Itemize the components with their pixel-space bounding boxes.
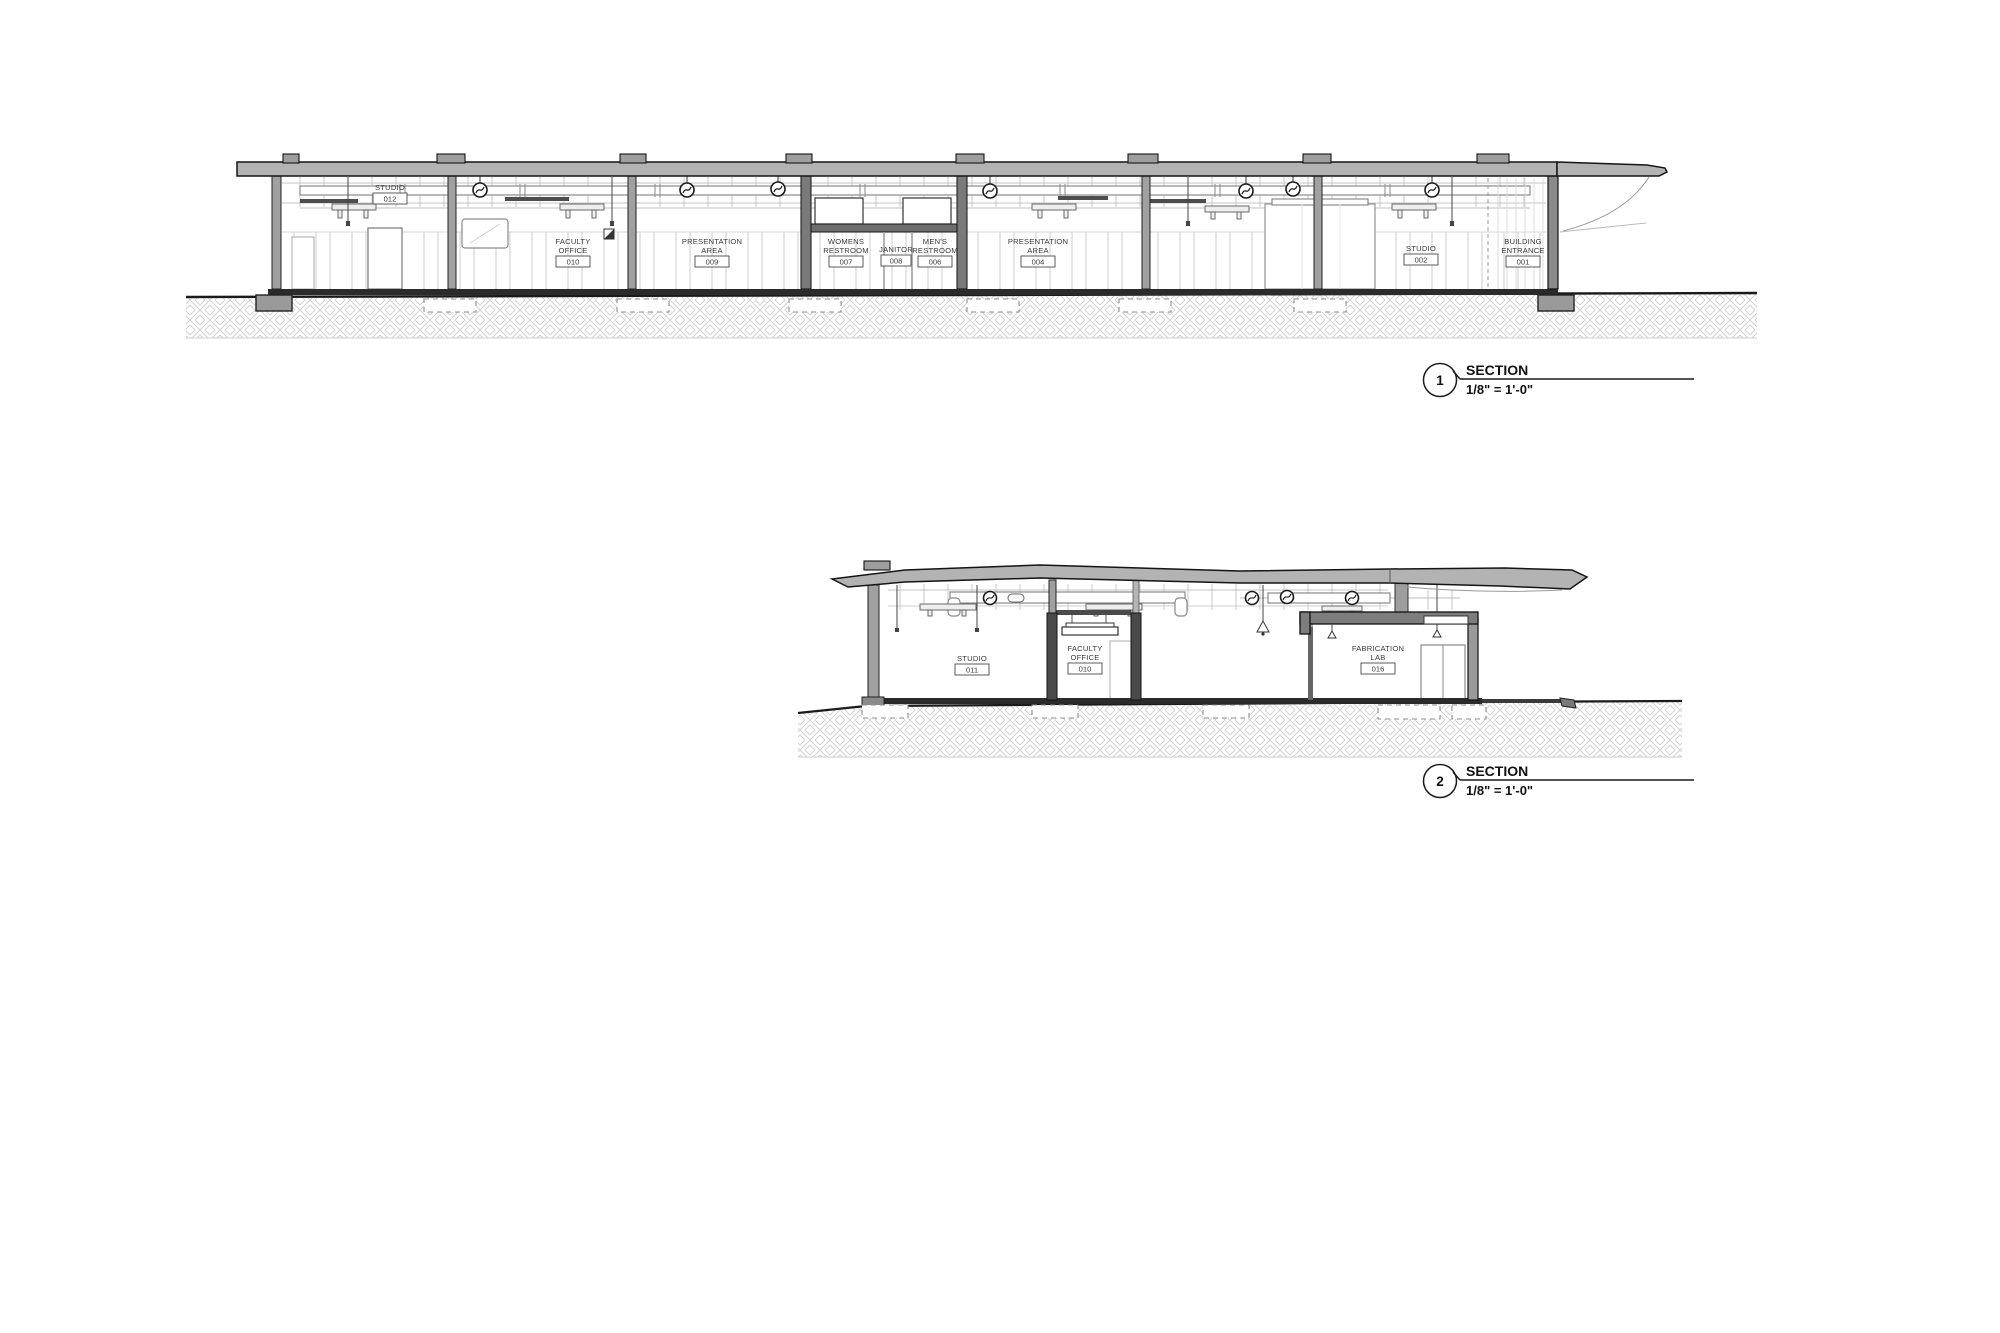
svg-text:RESTROOM: RESTROOM xyxy=(823,246,868,255)
callout-title: SECTION xyxy=(1466,362,1528,378)
callout-scale: 1/8" = 1'-0" xyxy=(1466,382,1533,397)
room-label-studio-012: STUDIO 012 xyxy=(373,183,407,204)
svg-text:STUDIO: STUDIO xyxy=(1406,244,1436,253)
section2-drawing: STUDIO 011 FACULTY OFFICE 010 FABRICATIO… xyxy=(798,561,1694,798)
svg-text:STUDIO: STUDIO xyxy=(375,183,405,192)
section1-drawing: STUDIO 012 FACULTY OFFICE 010 PRESENTATI… xyxy=(186,154,1757,397)
svg-text:FACULTY: FACULTY xyxy=(1067,644,1102,653)
svg-text:004: 004 xyxy=(1032,258,1045,267)
svg-text:FABRICATION: FABRICATION xyxy=(1352,644,1404,653)
svg-text:MEN'S: MEN'S xyxy=(923,237,947,246)
sections-drawing: STUDIO 012 FACULTY OFFICE 010 PRESENTATI… xyxy=(0,0,2000,1333)
svg-text:ENTRANCE: ENTRANCE xyxy=(1501,246,1544,255)
svg-text:011: 011 xyxy=(966,666,978,675)
svg-text:010: 010 xyxy=(1079,665,1092,674)
section2-room-labels: STUDIO 011 FACULTY OFFICE 010 FABRICATIO… xyxy=(955,644,1404,675)
svg-text:WOMENS: WOMENS xyxy=(828,237,864,246)
svg-text:OFFICE: OFFICE xyxy=(1070,653,1099,662)
room-label-janitor-008: JANITOR 008 xyxy=(879,245,913,266)
room-label-fabrication-lab-016: FABRICATION LAB 016 xyxy=(1352,644,1404,674)
callout-title-2: SECTION xyxy=(1466,763,1528,779)
room-label-faculty-office-010-s2: FACULTY OFFICE 010 xyxy=(1067,644,1102,674)
svg-text:FACULTY: FACULTY xyxy=(555,237,590,246)
svg-text:JANITOR: JANITOR xyxy=(879,245,913,254)
svg-text:LAB: LAB xyxy=(1371,653,1386,662)
svg-text:AREA: AREA xyxy=(1027,246,1049,255)
svg-text:006: 006 xyxy=(929,258,942,267)
callout-number-2: 2 xyxy=(1436,774,1444,789)
svg-text:009: 009 xyxy=(706,258,719,267)
svg-text:007: 007 xyxy=(840,258,853,267)
svg-text:008: 008 xyxy=(890,257,903,266)
drawing-sheet: STUDIO 012 FACULTY OFFICE 010 PRESENTATI… xyxy=(0,0,2000,1333)
svg-text:PRESENTATION: PRESENTATION xyxy=(1008,237,1068,246)
room-label-womens-restroom-007: WOMENS RESTROOM 007 xyxy=(823,237,868,267)
svg-text:010: 010 xyxy=(567,258,580,267)
svg-text:OFFICE: OFFICE xyxy=(558,246,587,255)
svg-text:001: 001 xyxy=(1517,258,1530,267)
svg-text:RESTROOM: RESTROOM xyxy=(912,246,957,255)
room-label-faculty-office-010: FACULTY OFFICE 010 xyxy=(555,237,590,267)
section2-callout: 2 SECTION 1/8" = 1'-0" xyxy=(1424,763,1695,798)
svg-text:012: 012 xyxy=(384,195,397,204)
svg-text:PRESENTATION: PRESENTATION xyxy=(682,237,742,246)
svg-text:002: 002 xyxy=(1415,256,1428,265)
section1-callout: 1 SECTION 1/8" = 1'-0" xyxy=(1424,362,1695,397)
svg-text:BUILDING: BUILDING xyxy=(1504,237,1541,246)
room-label-studio-002: STUDIO 002 xyxy=(1404,244,1438,265)
svg-text:STUDIO: STUDIO xyxy=(957,654,987,663)
room-label-studio-011: STUDIO 011 xyxy=(955,654,989,675)
room-label-building-entrance-001: BUILDING ENTRANCE 001 xyxy=(1501,237,1544,267)
svg-text:016: 016 xyxy=(1372,665,1385,674)
svg-text:AREA: AREA xyxy=(701,246,723,255)
callout-scale-2: 1/8" = 1'-0" xyxy=(1466,783,1533,798)
callout-number: 1 xyxy=(1436,373,1444,388)
